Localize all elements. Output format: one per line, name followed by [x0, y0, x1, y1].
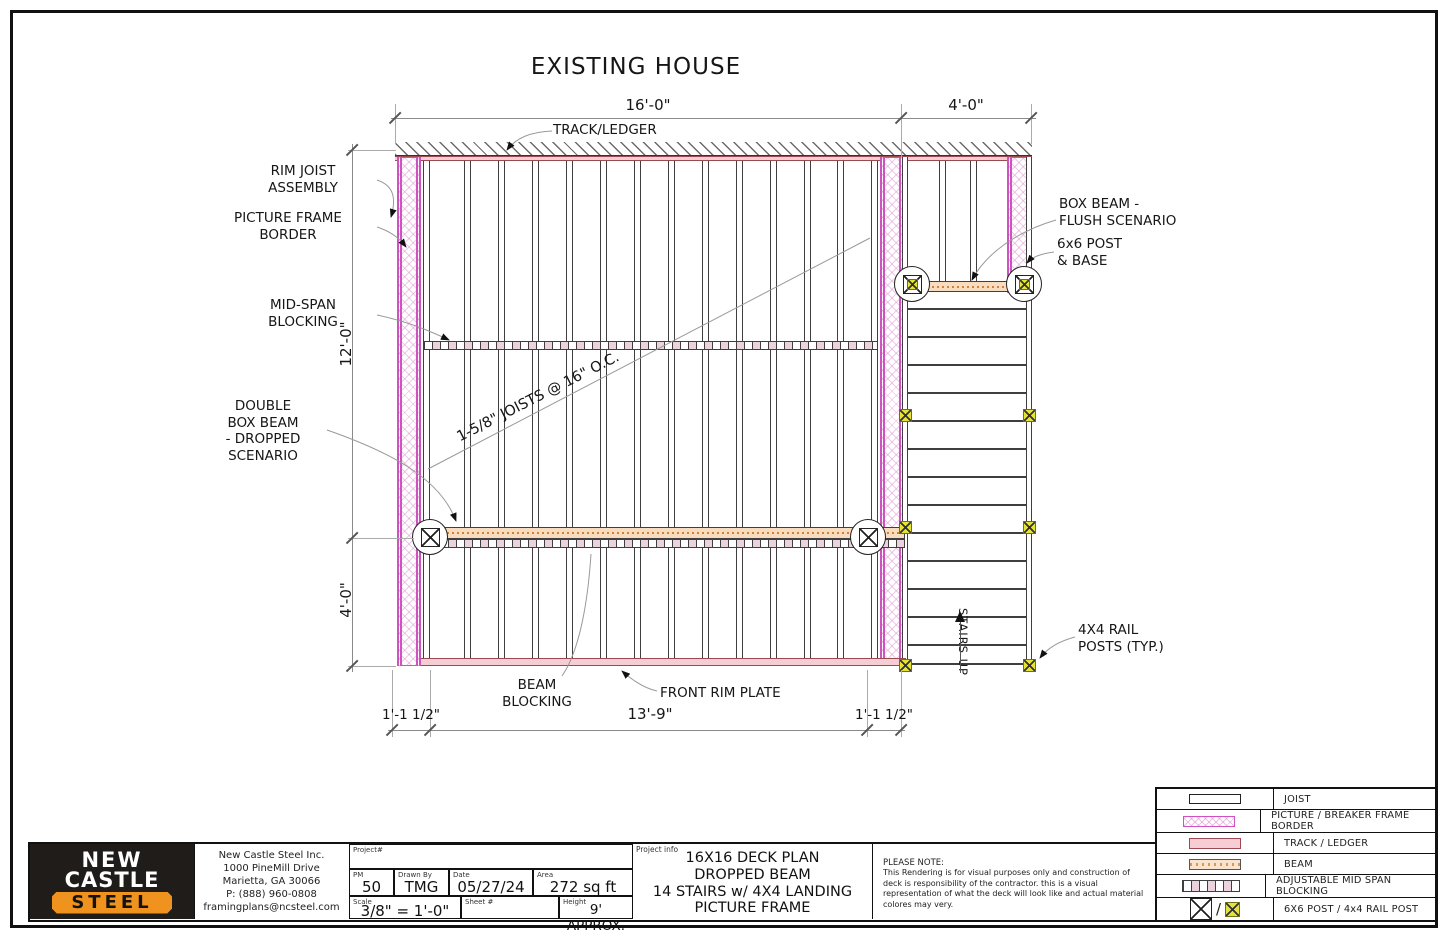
stair-tread	[908, 504, 1026, 506]
area-value: 272 sq ft	[534, 878, 632, 896]
deck-plan-sheet: EXISTING HOUSE 16'-0" 4'-0" 12'-0" 4'-0"…	[0, 0, 1445, 935]
front-rim-plate-band	[421, 658, 906, 666]
beam-blocking-band	[423, 539, 905, 548]
track-ledger-symbol	[1189, 838, 1241, 849]
existing-house-title: EXISTING HOUSE	[436, 54, 836, 80]
stair-tread	[908, 560, 1026, 562]
project-number-label: Project#	[353, 846, 383, 854]
stair-tread	[908, 364, 1026, 366]
mid-span-blocking-symbol	[1182, 880, 1240, 892]
rail-post-inside-marker	[907, 279, 918, 290]
6x6-post-marker	[894, 266, 930, 302]
4x4-rail-post-marker	[1023, 659, 1036, 672]
extension-line	[348, 666, 396, 667]
rail-post-inside-marker	[1019, 279, 1030, 290]
extension-line	[348, 538, 414, 539]
slash-separator: /	[1216, 900, 1221, 918]
dim-13ft9: 13'-9"	[590, 705, 710, 723]
legend-label-picture-frame: PICTURE / BREAKER FRAME BORDER	[1261, 810, 1435, 832]
deck-joist	[566, 161, 573, 658]
dim-bottom-right: 1'-1 1/2"	[824, 707, 944, 723]
extension-line	[395, 104, 396, 144]
4x4-rail-post-symbol	[1225, 902, 1240, 917]
legend-label-beam: BEAM	[1274, 859, 1313, 870]
deck-joist	[423, 161, 430, 658]
post-x-symbol	[421, 528, 440, 547]
area-cell: Area 272 sq ft	[533, 869, 633, 896]
track-ledger-band	[395, 156, 1032, 161]
label-beam-blocking: BEAM BLOCKING	[477, 677, 597, 710]
drawn-by-value: TMG	[395, 878, 448, 896]
disclaimer-note: PLEASE NOTE: This Rendering is for visua…	[873, 844, 1154, 919]
sheet-number-cell: Sheet #	[461, 896, 559, 919]
stairs-up-arrow-icon	[955, 611, 965, 622]
6x6-post-marker	[1006, 266, 1042, 302]
stair-tread	[908, 336, 1026, 338]
legend-row-picture-frame: PICTURE / BREAKER FRAME BORDER	[1157, 810, 1435, 833]
deck-joist	[804, 161, 811, 658]
beam-symbol	[1189, 859, 1241, 870]
top-dimension-line	[391, 118, 1036, 119]
dim-4ft-landing: 4'-0"	[906, 96, 1026, 114]
label-front-rim-plate: FRONT RIM PLATE	[660, 685, 781, 702]
stair-tread	[908, 476, 1026, 478]
height-cell: Height 9' APPROX.	[559, 896, 633, 919]
label-mid-span: MID-SPAN BLOCKING	[233, 297, 373, 330]
dim-16ft: 16'-0"	[558, 96, 738, 114]
label-6x6-post: 6x6 POST & BASE	[1057, 236, 1177, 269]
legend-row-track: TRACK / LEDGER	[1157, 833, 1435, 854]
deck-joist	[464, 161, 471, 658]
scale-cell: Scale 3/8" = 1'-0"	[349, 896, 461, 919]
deck-joist	[736, 161, 743, 658]
legend-label-posts: 6X6 POST / 4x4 RAIL POST	[1274, 904, 1418, 915]
note-body: This Rendering is for visual purposes on…	[883, 868, 1146, 910]
legend-row-beam: BEAM	[1157, 854, 1435, 875]
stair-tread	[908, 448, 1026, 450]
deck-joist	[770, 161, 777, 658]
logo-steel: STEEL	[52, 892, 172, 914]
legend-row-posts: / 6X6 POST / 4x4 RAIL POST	[1157, 898, 1435, 920]
label-rim-joist: RIM JOIST ASSEMBLY	[233, 163, 373, 196]
4x4-rail-post-marker	[899, 521, 912, 534]
logo-new: NEW	[81, 850, 142, 870]
picture-frame-symbol	[1183, 816, 1235, 827]
pm-cell: PM 50	[349, 869, 394, 896]
extension-line	[348, 150, 396, 151]
label-double-box-beam: DOUBLE BOX BEAM - DROPPED SCENARIO	[203, 398, 323, 464]
deck-joist	[600, 161, 607, 658]
existing-house-wall-hatch	[395, 142, 1032, 156]
stair-tread	[908, 392, 1026, 394]
stairs-direction-line	[960, 621, 961, 673]
deck-joist	[668, 161, 675, 658]
project-number-cell: Project#	[349, 844, 633, 869]
stair-tread	[908, 588, 1026, 590]
legend-label-track: TRACK / LEDGER	[1274, 838, 1368, 849]
dropped-box-beam	[416, 527, 905, 539]
6x6-post-marker	[412, 519, 448, 555]
legend: JOIST PICTURE / BREAKER FRAME BORDER TRA…	[1155, 787, 1437, 922]
company-address: New Castle Steel Inc. 1000 PineMill Driv…	[194, 844, 350, 919]
6x6-post-marker	[850, 519, 886, 555]
extension-line	[901, 104, 902, 157]
dim-bottom-left: 1'-1 1/2"	[351, 707, 471, 723]
legend-label-joist: JOIST	[1274, 794, 1311, 805]
label-rail-posts: 4X4 RAIL POSTS (TYP.)	[1078, 622, 1208, 655]
project-info-cell: Project info 16X16 DECK PLAN DROPPED BEA…	[633, 844, 873, 919]
joist-symbol	[1189, 794, 1241, 804]
deck-joist	[837, 161, 844, 658]
logo-castle: CASTLE	[65, 870, 160, 890]
deck-joist	[634, 161, 641, 658]
pm-value: 50	[350, 878, 393, 896]
date-value: 05/27/24	[450, 878, 532, 896]
stair-tread	[908, 420, 1026, 422]
title-block: NEW CASTLE STEEL New Castle Steel Inc. 1…	[28, 842, 1157, 922]
note-title: PLEASE NOTE:	[883, 858, 1146, 868]
drawn-by-cell: Drawn By TMG	[394, 869, 449, 896]
4x4-rail-post-marker	[899, 409, 912, 422]
height-value: 9' APPROX.	[560, 902, 632, 934]
deck-joist	[702, 161, 709, 658]
6x6-post-symbol	[1190, 898, 1212, 920]
company-logo: NEW CASTLE STEEL	[30, 844, 195, 919]
label-picture-frame: PICTURE FRAME BORDER	[203, 210, 373, 243]
legend-label-blocking: ADJUSTABLE MID SPAN BLOCKING	[1266, 875, 1435, 897]
deck-joist	[871, 161, 878, 658]
label-track-ledger: TRACK/LEDGER	[553, 122, 657, 139]
landing-joist	[970, 161, 977, 281]
landing-joist	[939, 161, 946, 281]
extension-line	[1031, 104, 1032, 144]
post-x-symbol	[859, 528, 878, 547]
dim-4ft-left: 4'-0"	[337, 560, 355, 640]
deck-joist	[532, 161, 539, 658]
sheet-number-label: Sheet #	[465, 898, 493, 906]
bottom-dimension-line	[388, 730, 905, 731]
legend-row-joist: JOIST	[1157, 789, 1435, 810]
scale-value: 3/8" = 1'-0"	[350, 902, 460, 920]
4x4-rail-post-marker	[1023, 521, 1036, 534]
4x4-rail-post-marker	[1023, 409, 1036, 422]
legend-row-blocking: ADJUSTABLE MID SPAN BLOCKING	[1157, 875, 1435, 898]
stair-tread	[908, 532, 1026, 534]
picture-frame-border-left	[397, 157, 421, 666]
project-info-text: 16X16 DECK PLAN DROPPED BEAM 14 STAIRS w…	[633, 850, 872, 917]
stair-tread	[908, 308, 1026, 310]
date-cell: Date 05/27/24	[449, 869, 533, 896]
label-box-beam-flush: BOX BEAM - FLUSH SCENARIO	[1059, 196, 1209, 229]
